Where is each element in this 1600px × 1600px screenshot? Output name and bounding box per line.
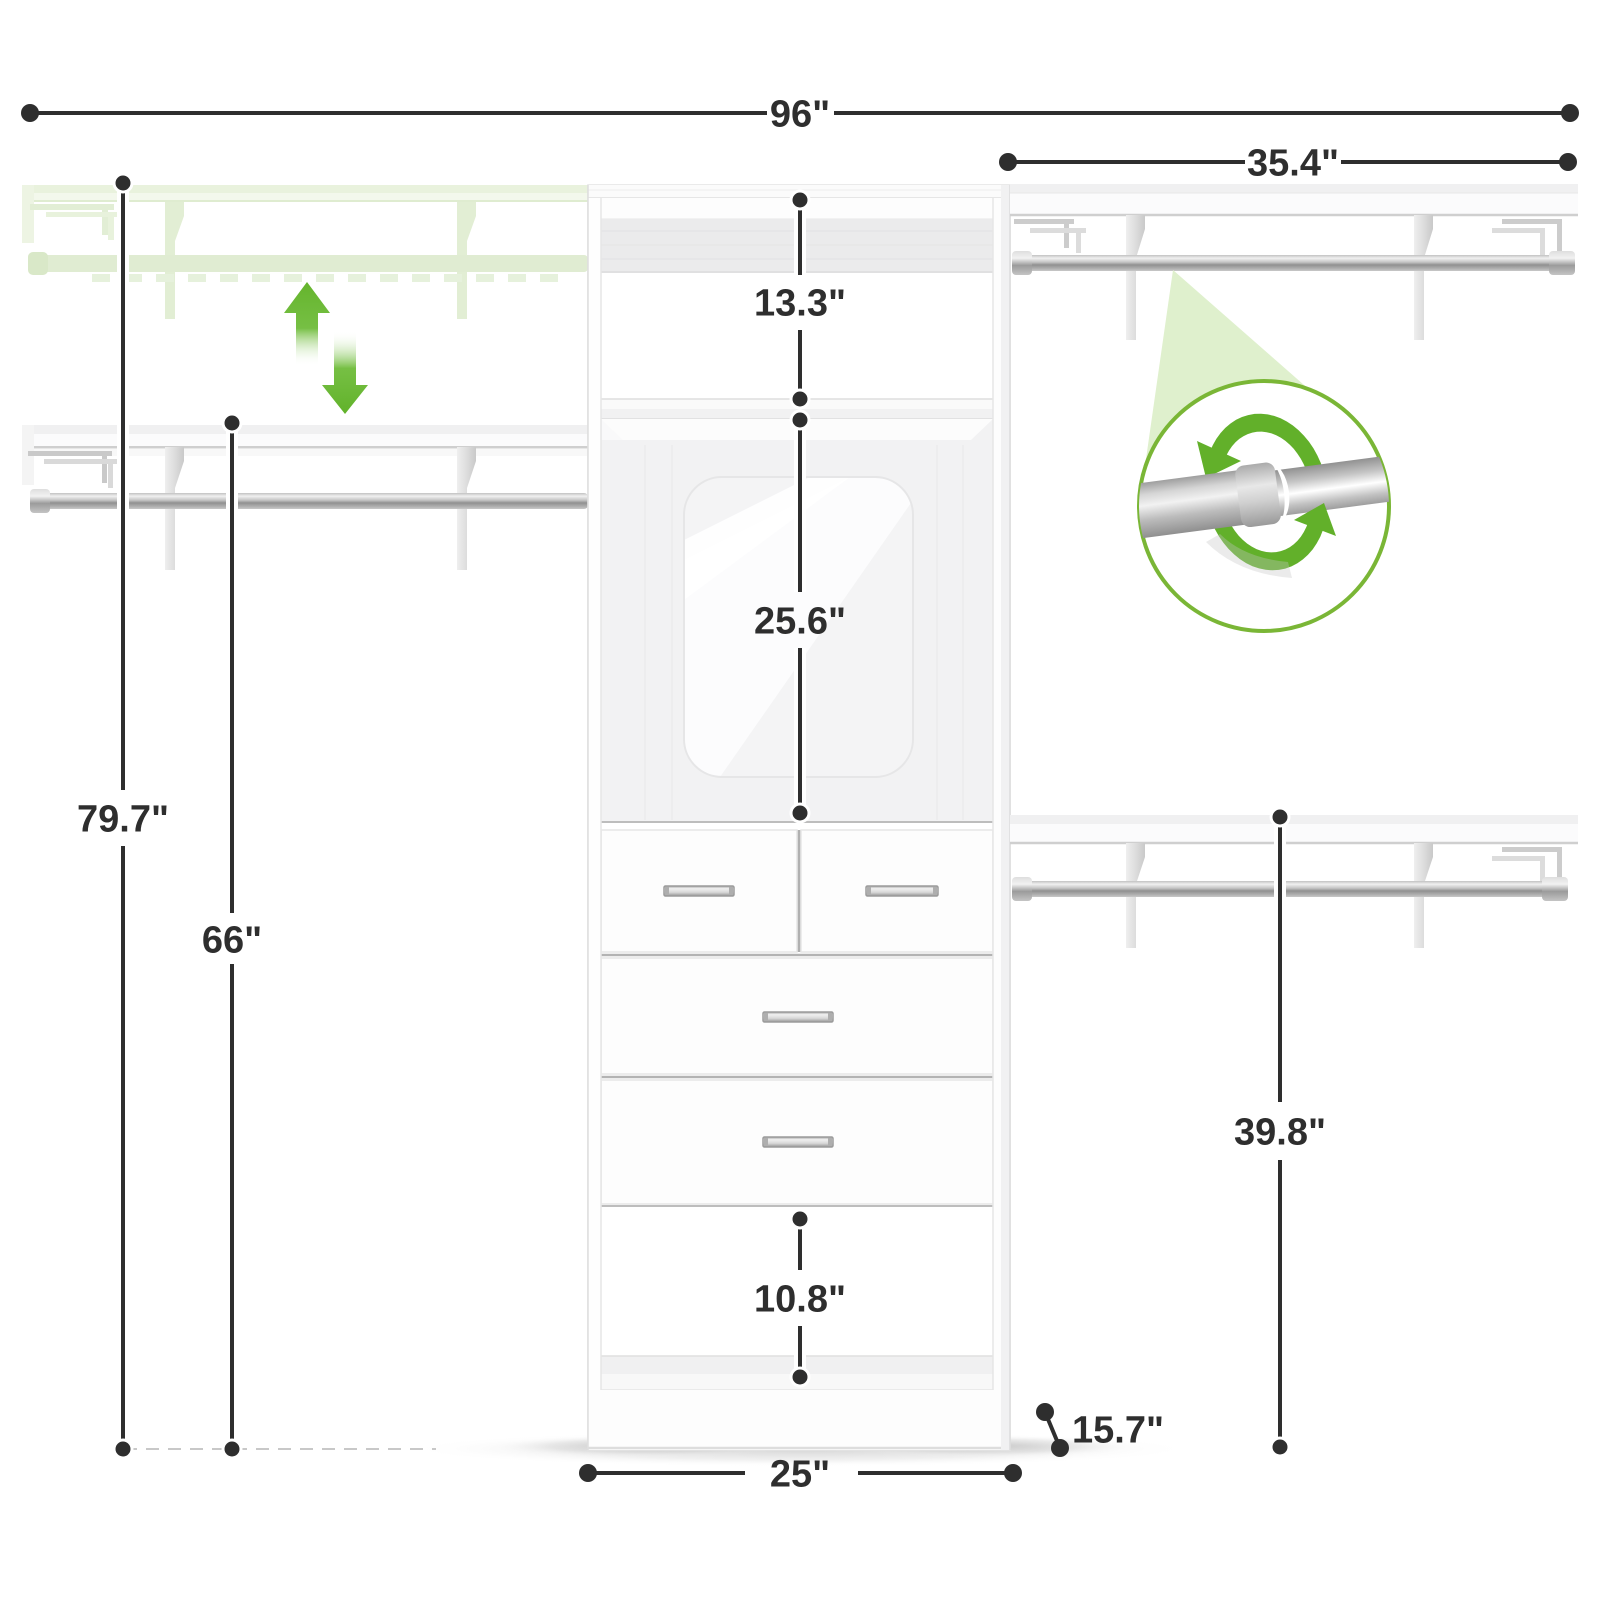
svg-text:10.8": 10.8": [754, 1279, 846, 1321]
svg-text:15.7": 15.7": [1072, 1410, 1164, 1452]
svg-text:13.3": 13.3": [754, 283, 846, 325]
svg-text:35.4": 35.4": [1247, 143, 1339, 185]
svg-text:66": 66": [202, 920, 262, 962]
svg-text:79.7": 79.7": [77, 799, 169, 841]
svg-text:96": 96": [770, 94, 830, 136]
svg-text:25.6": 25.6": [754, 601, 846, 643]
svg-text:39.8": 39.8": [1234, 1112, 1326, 1154]
svg-text:25": 25": [770, 1454, 830, 1496]
